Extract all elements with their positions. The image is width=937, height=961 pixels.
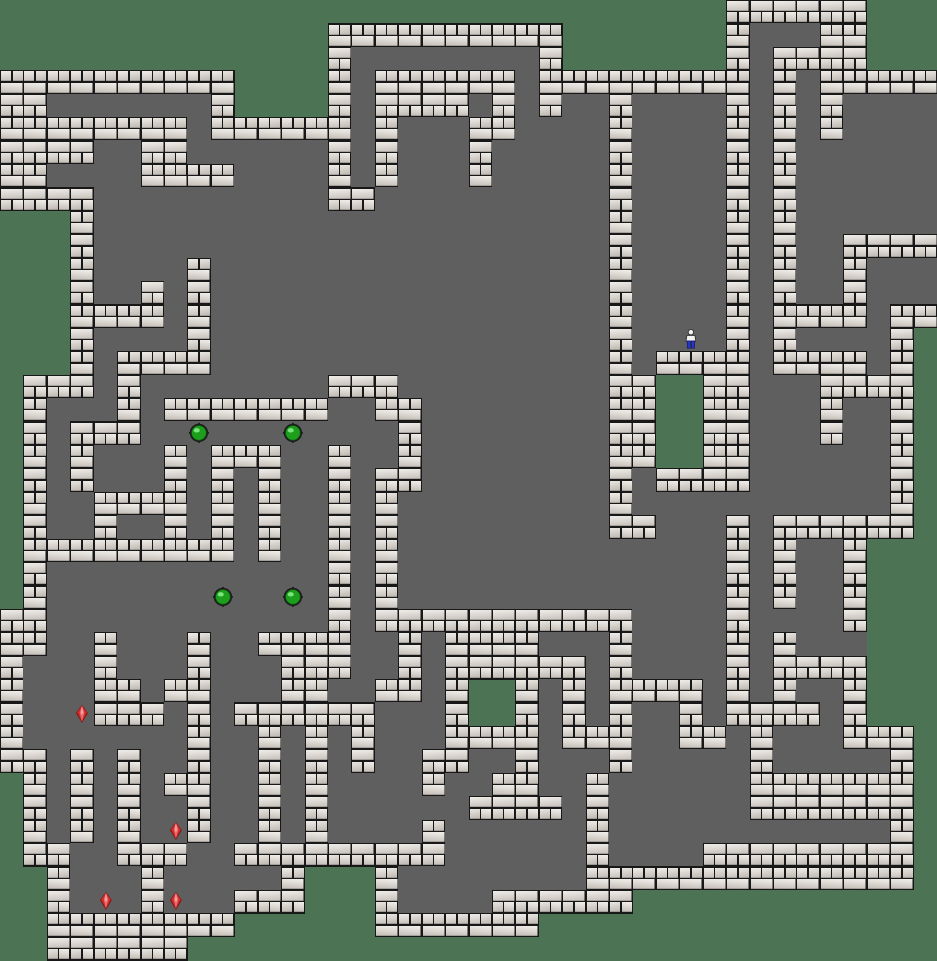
floor-tile[interactable] [656,117,680,141]
floor-tile[interactable] [469,47,493,71]
floor-tile[interactable] [281,492,305,516]
floor-tile[interactable] [515,515,539,539]
floor-tile[interactable] [351,94,375,118]
floor-tile[interactable] [305,351,329,375]
floor-tile[interactable] [141,632,165,656]
floor-tile[interactable] [703,749,727,773]
floor-tile[interactable] [515,866,539,890]
floor-tile[interactable] [586,328,610,352]
floor-tile[interactable] [586,679,610,703]
floor-tile[interactable] [562,164,586,188]
floor-tile[interactable] [750,23,774,47]
floor-tile[interactable] [375,726,399,750]
floor-tile[interactable] [328,351,352,375]
floor-tile[interactable] [539,117,563,141]
floor-tile[interactable] [258,187,282,211]
floor-tile[interactable] [750,304,774,328]
floor-tile[interactable] [70,585,94,609]
floor-tile[interactable] [47,421,71,445]
floor-tile[interactable] [656,140,680,164]
floor-tile[interactable] [234,187,258,211]
floor-tile[interactable] [445,328,469,352]
floor-tile[interactable] [562,211,586,235]
floor-tile[interactable] [94,351,118,375]
floor-tile[interactable] [562,562,586,586]
floor-tile[interactable] [469,866,493,890]
floor-tile[interactable] [562,468,586,492]
floor-tile[interactable] [703,164,727,188]
floor-tile[interactable] [843,398,867,422]
floor-tile[interactable] [703,187,727,211]
floor-tile[interactable] [305,445,329,469]
floor-tile[interactable] [586,117,610,141]
floor-tile[interactable] [632,468,656,492]
floor-tile[interactable] [703,234,727,258]
floor-tile[interactable] [23,702,47,726]
floor-tile[interactable] [375,328,399,352]
floor-tile[interactable] [562,328,586,352]
floor-tile[interactable] [562,749,586,773]
floor-tile[interactable] [562,258,586,282]
floor-tile[interactable] [351,539,375,563]
floor-tile[interactable] [47,585,71,609]
floor-tile[interactable] [703,515,727,539]
floor-tile[interactable] [375,258,399,282]
floor-tile[interactable] [47,679,71,703]
floor-tile[interactable] [656,773,680,797]
floor-tile[interactable] [258,679,282,703]
floor-tile[interactable] [281,773,305,797]
floor-tile[interactable] [820,140,844,164]
floor-tile[interactable] [469,234,493,258]
floor-tile[interactable] [117,187,141,211]
floor-tile[interactable] [796,421,820,445]
floor-tile[interactable] [914,164,937,188]
floor-tile[interactable] [515,94,539,118]
floor-tile[interactable] [656,726,680,750]
floor-tile[interactable] [750,632,774,656]
floor-tile[interactable] [679,562,703,586]
floor-tile[interactable] [586,539,610,563]
floor-tile[interactable] [141,328,165,352]
floor-tile[interactable] [305,164,329,188]
floor-tile[interactable] [234,539,258,563]
floor-tile[interactable] [187,140,211,164]
floor-tile[interactable] [867,281,891,305]
floor-tile[interactable] [796,632,820,656]
floor-tile[interactable] [445,398,469,422]
floor-tile[interactable] [47,515,71,539]
floor-tile[interactable] [234,211,258,235]
floor-tile[interactable] [820,234,844,258]
floor-tile[interactable] [515,843,539,867]
floor-tile[interactable] [351,632,375,656]
floor-tile[interactable] [234,726,258,750]
floor-tile[interactable] [94,445,118,469]
floor-tile[interactable] [211,421,235,445]
floor-tile[interactable] [422,281,446,305]
floor-tile[interactable] [586,304,610,328]
floor-tile[interactable] [164,234,188,258]
floor-tile[interactable] [539,726,563,750]
floor-tile[interactable] [562,140,586,164]
floor-tile[interactable] [609,585,633,609]
floor-tile[interactable] [375,796,399,820]
floor-tile[interactable] [492,515,516,539]
floor-tile[interactable] [679,820,703,844]
floor-tile[interactable] [632,234,656,258]
floor-tile[interactable] [820,539,844,563]
floor-tile[interactable] [375,421,399,445]
floor-tile[interactable] [867,749,891,773]
floor-tile[interactable] [492,140,516,164]
floor-tile[interactable] [375,820,399,844]
floor-tile[interactable] [820,492,844,516]
floor-tile[interactable] [422,539,446,563]
floor-tile[interactable] [492,281,516,305]
floor-tile[interactable] [281,281,305,305]
floor-tile[interactable] [117,890,141,914]
floor-tile[interactable] [305,328,329,352]
floor-tile[interactable] [703,679,727,703]
sokoban-board[interactable] [0,0,937,960]
floor-tile[interactable] [656,258,680,282]
floor-tile[interactable] [164,632,188,656]
floor-tile[interactable] [843,164,867,188]
floor-tile[interactable] [703,773,727,797]
floor-tile[interactable] [351,258,375,282]
floor-tile[interactable] [703,609,727,633]
floor-tile[interactable] [351,773,375,797]
floor-tile[interactable] [258,211,282,235]
floor-tile[interactable] [164,585,188,609]
floor-tile[interactable] [117,468,141,492]
floor-tile[interactable] [117,445,141,469]
floor-tile[interactable] [726,492,750,516]
floor-tile[interactable] [515,304,539,328]
floor-tile[interactable] [539,281,563,305]
floor-tile[interactable] [398,375,422,399]
floor-tile[interactable] [562,492,586,516]
floor-tile[interactable] [211,656,235,680]
floor-tile[interactable] [679,749,703,773]
floor-tile[interactable] [445,843,469,867]
floor-tile[interactable] [632,773,656,797]
floor-tile[interactable] [398,304,422,328]
floor-tile[interactable] [492,375,516,399]
floor-tile[interactable] [47,398,71,422]
floor-tile[interactable] [234,632,258,656]
floor-tile[interactable] [94,211,118,235]
floor-tile[interactable] [117,234,141,258]
floor-tile[interactable] [562,234,586,258]
floor-tile[interactable] [820,211,844,235]
floor-tile[interactable] [492,820,516,844]
floor-tile[interactable] [539,773,563,797]
floor-tile[interactable] [445,234,469,258]
floor-tile[interactable] [492,304,516,328]
floor-tile[interactable] [703,140,727,164]
floor-tile[interactable] [351,281,375,305]
floor-tile[interactable] [398,539,422,563]
floor-tile[interactable] [796,749,820,773]
floor-tile[interactable] [234,281,258,305]
floor-tile[interactable] [632,632,656,656]
floor-tile[interactable] [656,328,680,352]
floor-tile[interactable] [750,94,774,118]
floor-tile[interactable] [843,749,867,773]
floor-tile[interactable] [796,187,820,211]
floor-tile[interactable] [726,749,750,773]
floor-tile[interactable] [375,234,399,258]
box-ball[interactable] [282,422,304,444]
floor-tile[interactable] [70,843,94,867]
floor-tile[interactable] [398,796,422,820]
floor-tile[interactable] [211,258,235,282]
floor-tile[interactable] [94,164,118,188]
floor-tile[interactable] [164,562,188,586]
floor-tile[interactable] [211,726,235,750]
floor-tile[interactable] [422,117,446,141]
floor-tile[interactable] [141,211,165,235]
floor-tile[interactable] [94,820,118,844]
floor-tile[interactable] [492,468,516,492]
floor-tile[interactable] [679,187,703,211]
floor-tile[interactable] [398,47,422,71]
floor-tile[interactable] [422,702,446,726]
floor-tile[interactable] [328,820,352,844]
floor-tile[interactable] [843,211,867,235]
floor-tile[interactable] [281,796,305,820]
floor-tile[interactable] [187,94,211,118]
floor-tile[interactable] [703,94,727,118]
floor-tile[interactable] [94,726,118,750]
floor-tile[interactable] [562,585,586,609]
floor-tile[interactable] [234,304,258,328]
floor-tile[interactable] [94,585,118,609]
floor-tile[interactable] [234,773,258,797]
floor-tile[interactable] [539,585,563,609]
floor-tile[interactable] [258,562,282,586]
floor-tile[interactable] [47,820,71,844]
floor-tile[interactable] [328,258,352,282]
floor-tile[interactable] [515,492,539,516]
floor-tile[interactable] [632,281,656,305]
floor-tile[interactable] [867,94,891,118]
floor-tile[interactable] [469,94,493,118]
floor-tile[interactable] [445,187,469,211]
floor-tile[interactable] [796,328,820,352]
floor-tile[interactable] [562,866,586,890]
floor-tile[interactable] [70,94,94,118]
floor-tile[interactable] [492,421,516,445]
floor-tile[interactable] [796,398,820,422]
floor-tile[interactable] [211,304,235,328]
floor-tile[interactable] [750,679,774,703]
floor-tile[interactable] [398,117,422,141]
floor-tile[interactable] [469,539,493,563]
floor-tile[interactable] [703,281,727,305]
floor-tile[interactable] [867,140,891,164]
floor-tile[interactable] [914,258,937,282]
floor-tile[interactable] [515,234,539,258]
floor-tile[interactable] [796,820,820,844]
floor-tile[interactable] [656,562,680,586]
floor-tile[interactable] [70,164,94,188]
floor-tile[interactable] [234,164,258,188]
floor-tile[interactable] [750,562,774,586]
floor-tile[interactable] [726,796,750,820]
floor-tile[interactable] [632,351,656,375]
floor-tile[interactable] [492,164,516,188]
floor-tile[interactable] [305,375,329,399]
floor-tile[interactable] [70,515,94,539]
floor-tile[interactable] [117,515,141,539]
floor-tile[interactable] [750,211,774,235]
floor-tile[interactable] [750,140,774,164]
floor-tile[interactable] [726,820,750,844]
floor-tile[interactable] [211,281,235,305]
floor-tile[interactable] [375,47,399,71]
floor-tile[interactable] [820,585,844,609]
floor-tile[interactable] [539,398,563,422]
floor-tile[interactable] [422,304,446,328]
floor-tile[interactable] [656,749,680,773]
floor-tile[interactable] [679,304,703,328]
floor-tile[interactable] [679,258,703,282]
floor-tile[interactable] [539,632,563,656]
floor-tile[interactable] [258,328,282,352]
floor-tile[interactable] [164,304,188,328]
floor-tile[interactable] [258,421,282,445]
floor-tile[interactable] [632,117,656,141]
floor-tile[interactable] [328,421,352,445]
floor-tile[interactable] [539,140,563,164]
floor-tile[interactable] [469,375,493,399]
floor-tile[interactable] [70,679,94,703]
floor-tile[interactable] [164,656,188,680]
floor-tile[interactable] [632,328,656,352]
floor-tile[interactable] [305,468,329,492]
floor-tile[interactable] [445,47,469,71]
floor-tile[interactable] [117,211,141,235]
floor-tile[interactable] [586,468,610,492]
floor-tile[interactable] [141,187,165,211]
floor-tile[interactable] [796,70,820,94]
floor-tile[interactable] [914,140,937,164]
floor-tile[interactable] [586,211,610,235]
floor-tile[interactable] [234,796,258,820]
floor-tile[interactable] [632,258,656,282]
floor-tile[interactable] [867,258,891,282]
floor-tile[interactable] [469,258,493,282]
floor-tile[interactable] [656,515,680,539]
floor-tile[interactable] [281,140,305,164]
floor-tile[interactable] [398,562,422,586]
floor-tile[interactable] [703,820,727,844]
floor-tile[interactable] [422,585,446,609]
floor-tile[interactable] [586,375,610,399]
floor-tile[interactable] [820,328,844,352]
floor-tile[interactable] [515,164,539,188]
floor-tile[interactable] [164,375,188,399]
floor-tile[interactable] [328,234,352,258]
floor-tile[interactable] [375,351,399,375]
floor-tile[interactable] [796,258,820,282]
floor-tile[interactable] [562,773,586,797]
floor-tile[interactable] [492,492,516,516]
floor-tile[interactable] [539,445,563,469]
floor-tile[interactable] [515,375,539,399]
floor-tile[interactable] [656,539,680,563]
floor-tile[interactable] [234,585,258,609]
floor-tile[interactable] [117,164,141,188]
floor-tile[interactable] [94,281,118,305]
floor-tile[interactable] [469,843,493,867]
floor-tile[interactable] [117,866,141,890]
floor-tile[interactable] [656,94,680,118]
floor-tile[interactable] [586,515,610,539]
floor-tile[interactable] [632,843,656,867]
floor-tile[interactable] [515,539,539,563]
floor-tile[interactable] [422,562,446,586]
floor-tile[interactable] [586,398,610,422]
floor-tile[interactable] [164,702,188,726]
floor-tile[interactable] [703,211,727,235]
floor-tile[interactable] [164,796,188,820]
floor-tile[interactable] [679,773,703,797]
floor-tile[interactable] [843,468,867,492]
floor-tile[interactable] [750,421,774,445]
floor-tile[interactable] [843,820,867,844]
floor-tile[interactable] [422,445,446,469]
floor-tile[interactable] [351,47,375,71]
floor-tile[interactable] [211,351,235,375]
floor-tile[interactable] [445,117,469,141]
floor-tile[interactable] [328,796,352,820]
floor-tile[interactable] [281,234,305,258]
floor-tile[interactable] [515,351,539,375]
floor-tile[interactable] [445,445,469,469]
floor-tile[interactable] [539,468,563,492]
floor-tile[interactable] [609,773,633,797]
floor-tile[interactable] [234,656,258,680]
floor-tile[interactable] [469,445,493,469]
floor-tile[interactable] [632,609,656,633]
floor-tile[interactable] [187,234,211,258]
floor-tile[interactable] [398,866,422,890]
floor-tile[interactable] [539,866,563,890]
floor-tile[interactable] [820,749,844,773]
floor-tile[interactable] [305,562,329,586]
floor-tile[interactable] [820,562,844,586]
floor-tile[interactable] [867,187,891,211]
floor-tile[interactable] [632,492,656,516]
floor-tile[interactable] [914,211,937,235]
floor-tile[interactable] [422,140,446,164]
floor-tile[interactable] [141,258,165,282]
floor-tile[interactable] [750,117,774,141]
floor-tile[interactable] [679,539,703,563]
floor-tile[interactable] [773,492,797,516]
floor-tile[interactable] [562,632,586,656]
floor-tile[interactable] [469,211,493,235]
floor-tile[interactable] [469,328,493,352]
floor-tile[interactable] [867,421,891,445]
floor-tile[interactable] [47,773,71,797]
floor-tile[interactable] [632,211,656,235]
floor-tile[interactable] [679,117,703,141]
